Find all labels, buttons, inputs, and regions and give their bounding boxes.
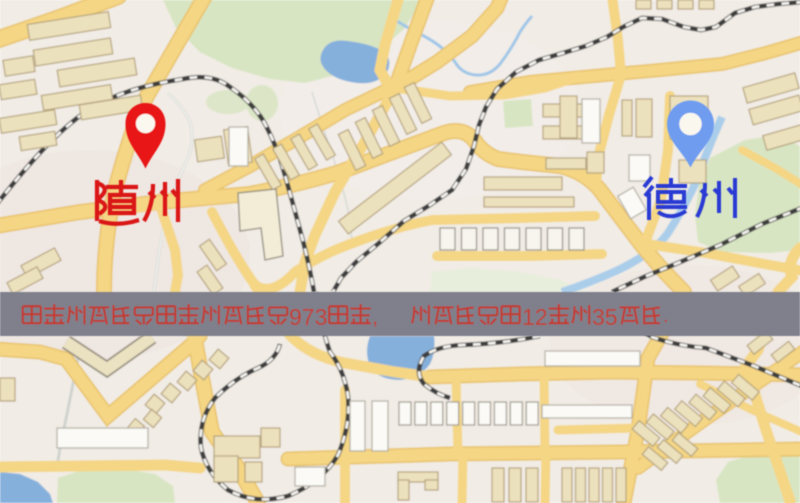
svg-text:.: . <box>663 305 669 327</box>
svg-text:973: 973 <box>289 304 327 330</box>
svg-text:12: 12 <box>522 304 548 330</box>
svg-text:,: , <box>372 304 378 329</box>
svg-text:35: 35 <box>592 304 618 330</box>
